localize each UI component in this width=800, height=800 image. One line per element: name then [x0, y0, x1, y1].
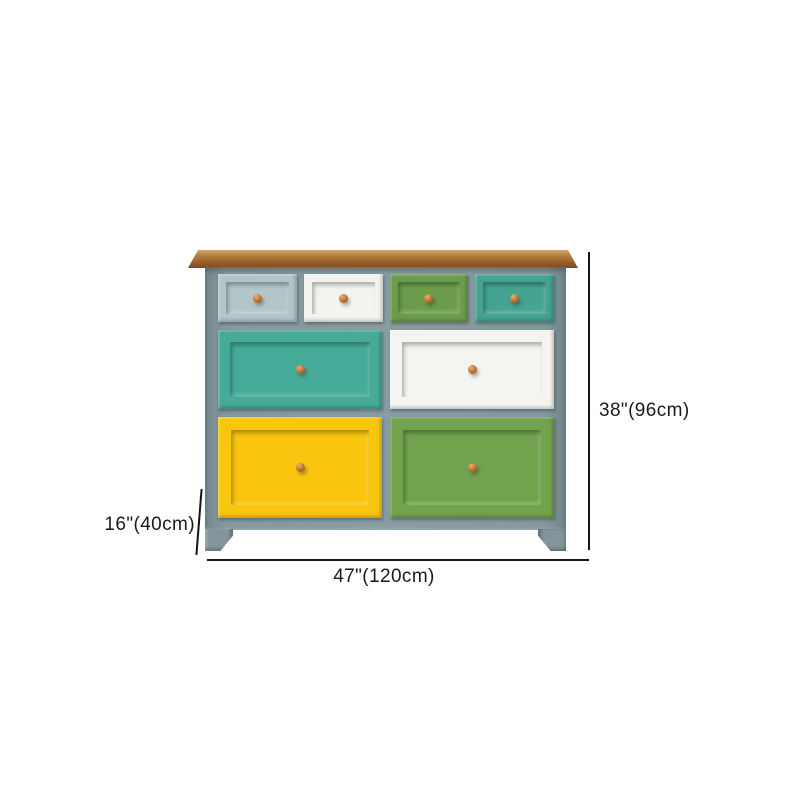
- drawer-row-top: [218, 274, 554, 322]
- drawer-top-3-green: [390, 274, 469, 322]
- dresser-leg-right: [538, 529, 566, 551]
- drawer-middle-2-white: [390, 330, 554, 409]
- drawer-top-2-white: [304, 274, 383, 322]
- drawer-row-bottom: [218, 417, 554, 518]
- drawer-knob-icon: [510, 294, 519, 303]
- product-dimension-diagram: 38"(96cm) 16"(40cm) 47"(120cm): [0, 0, 800, 800]
- drawer-bottom-1-yellow: [218, 417, 382, 518]
- drawer-middle-1-teal: [218, 330, 382, 409]
- drawer-knob-icon: [468, 463, 477, 472]
- width-dimension-line: [207, 559, 589, 561]
- depth-dimension-label: 16"(40cm): [95, 514, 195, 536]
- drawer-knob-icon: [424, 294, 433, 303]
- drawer-knob-icon: [468, 365, 477, 374]
- dresser-wood-top: [188, 250, 578, 268]
- drawer-knob-icon: [253, 294, 262, 303]
- drawer-bottom-2-green: [390, 417, 554, 518]
- width-dimension-label: 47"(120cm): [304, 566, 464, 588]
- drawer-knob-icon: [296, 463, 305, 472]
- drawer-knob-icon: [296, 365, 305, 374]
- drawer-top-1-bluegray: [218, 274, 297, 322]
- height-dimension-label: 38"(96cm): [599, 400, 690, 422]
- drawer-area: [218, 274, 554, 518]
- height-dimension-line: [588, 252, 590, 550]
- drawer-top-4-teal: [475, 274, 554, 322]
- drawer-row-middle: [218, 330, 554, 409]
- depth-dimension-line: [195, 489, 202, 555]
- dresser-leg-left: [205, 529, 233, 551]
- dresser-body-frame: [205, 267, 566, 530]
- drawer-knob-icon: [339, 294, 348, 303]
